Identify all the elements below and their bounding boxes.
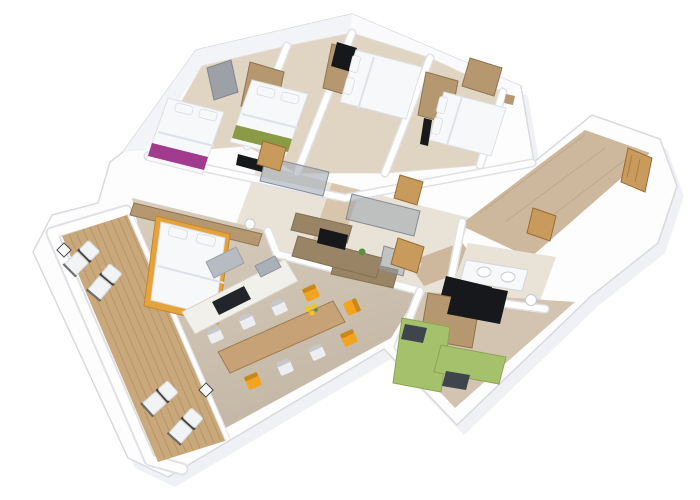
floor-plan-stage [0, 0, 700, 500]
sink-basin [501, 272, 515, 282]
nightstand [504, 94, 515, 105]
floor-plan-render [0, 0, 700, 500]
toilet [526, 295, 537, 306]
sink-basin [477, 267, 491, 277]
toilet-1 [245, 219, 255, 229]
plant [359, 249, 366, 256]
